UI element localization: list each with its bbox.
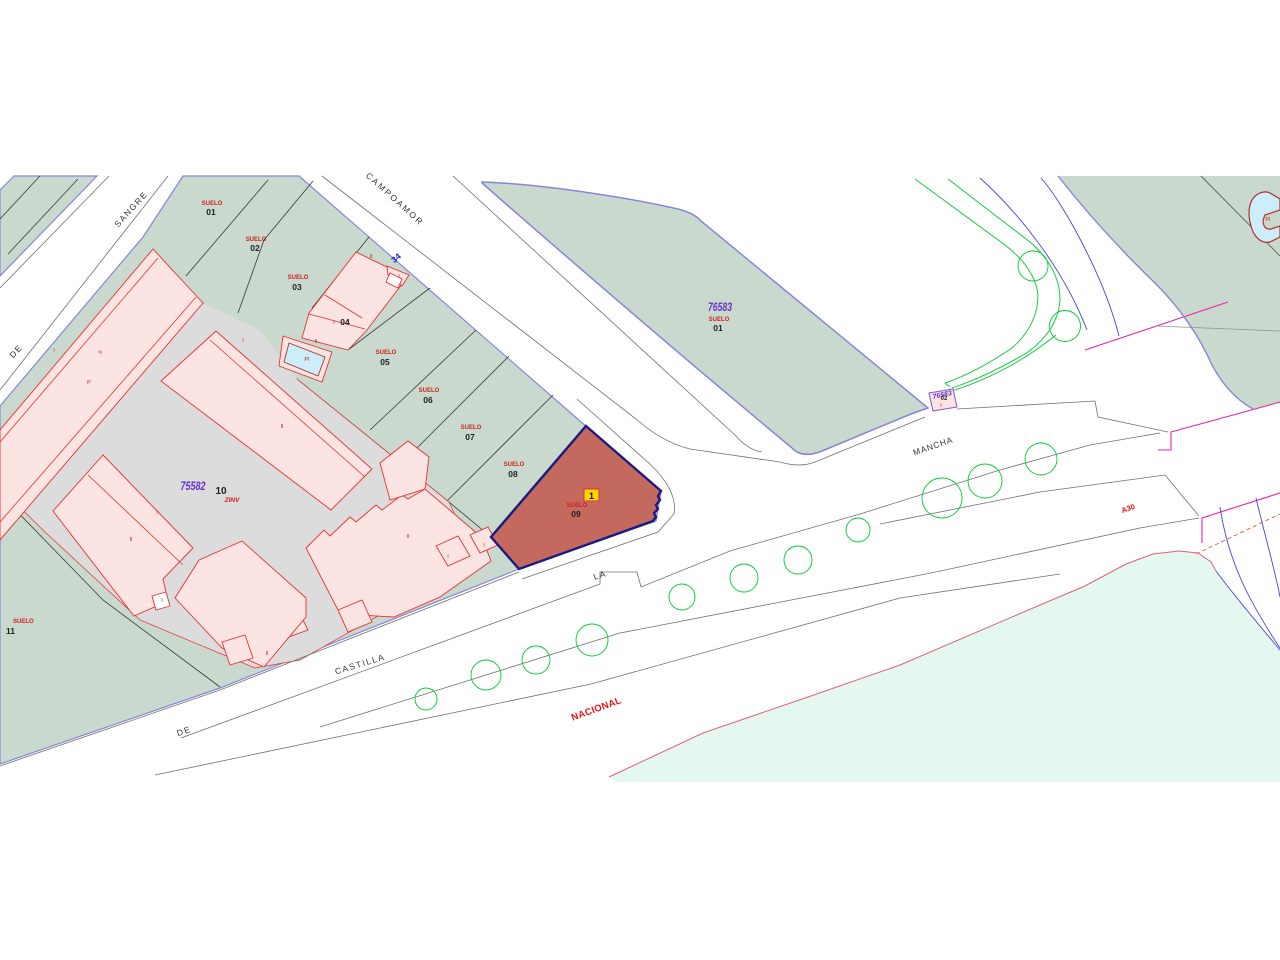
- svg-text:P: P: [87, 380, 91, 386]
- svg-text:SUELO: SUELO: [504, 462, 525, 468]
- svg-text:05: 05: [380, 357, 390, 367]
- svg-text:SUELO: SUELO: [288, 275, 309, 281]
- svg-text:75582: 75582: [181, 481, 206, 493]
- svg-text:II: II: [129, 537, 133, 543]
- svg-text:II: II: [406, 534, 410, 540]
- svg-text:03: 03: [292, 282, 302, 292]
- svg-text:ZINV: ZINV: [224, 497, 240, 504]
- svg-text:76583: 76583: [708, 302, 732, 314]
- svg-text:II: II: [314, 339, 318, 345]
- svg-text:08: 08: [508, 469, 518, 479]
- svg-text:II: II: [265, 651, 269, 657]
- svg-text:02: 02: [250, 243, 260, 253]
- svg-text:01: 01: [206, 207, 216, 217]
- svg-text:09: 09: [571, 509, 581, 519]
- svg-text:PI: PI: [304, 357, 310, 363]
- svg-text:SUELO: SUELO: [13, 619, 34, 625]
- svg-text:SUELO: SUELO: [376, 350, 397, 356]
- svg-text:02: 02: [941, 396, 948, 402]
- svg-text:04: 04: [340, 317, 350, 327]
- svg-text:II: II: [280, 424, 284, 430]
- svg-text:06: 06: [423, 395, 433, 405]
- svg-text:07: 07: [465, 432, 475, 442]
- svg-text:10: 10: [215, 486, 227, 497]
- svg-text:SUELO: SUELO: [419, 388, 440, 394]
- svg-text:PI: PI: [1265, 217, 1271, 223]
- svg-text:1: 1: [589, 491, 594, 501]
- svg-text:01: 01: [713, 323, 723, 333]
- svg-text:II: II: [369, 254, 373, 260]
- svg-text:11: 11: [6, 626, 15, 636]
- svg-text:SUELO: SUELO: [461, 425, 482, 431]
